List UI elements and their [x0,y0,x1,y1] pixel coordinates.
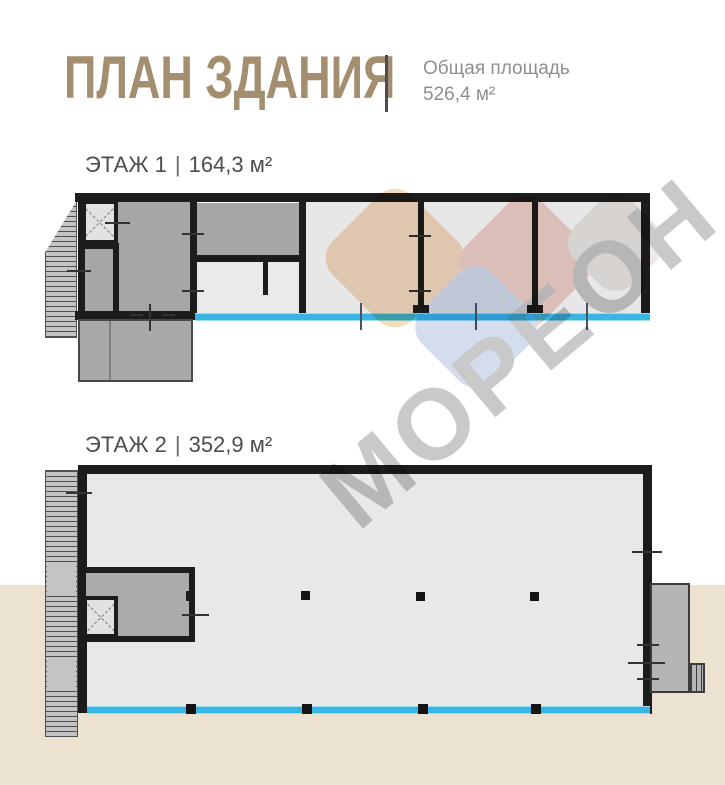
floor1-partition-3-foot [527,305,543,314]
floor1-plan [45,193,650,388]
floor1-door-tick-4 [182,290,204,292]
floor1-upper-dark-room [197,203,299,255]
floor2-label: ЭТАЖ 2|352,9 м² [85,432,272,458]
floor1-top-wall [75,193,650,202]
floor1-room-divider-wall [197,255,306,262]
floor1-door-tick-5 [409,235,431,237]
floor2-door-tick-1 [632,551,662,553]
floor1-door-tick-3 [182,233,204,235]
floor1-door-tick-6 [409,290,431,292]
building-plan-page: ПЛАН ЗДАНИЯ Общая площадь 526,4 м² ЭТАЖ … [0,0,725,785]
page-title: ПЛАН ЗДАНИЯ [64,48,395,108]
floor2-top-wall [78,465,652,474]
floor1-door-dash-2 [163,314,175,316]
floor1-separator: | [167,152,189,177]
floor2-stair-landing-1 [47,564,76,592]
header-divider [385,55,388,112]
total-area-label: Общая площадь [423,56,570,82]
floor1-exterior-staircase [45,200,77,338]
floor1-label: ЭТАЖ 1|164,3 м² [85,152,272,178]
floor1-window-tick-2 [475,303,477,330]
floor1-right-wall [641,193,650,320]
floor2-window-line [87,707,650,713]
floor1-partition-2-foot [413,305,429,314]
floor2-stair-landing-2 [47,661,76,691]
floor2-door-tick-3 [628,662,665,664]
floor2-column-2 [416,592,425,601]
floor2-window-post-2 [302,704,312,714]
floor2-column-1 [301,591,310,600]
floor2-door-tick-5 [66,492,92,494]
floor1-stub-wall [263,262,268,295]
floor1-annex-divider [109,321,111,380]
floor1-inner-wall-b [190,193,197,319]
floor1-door-tick-1 [67,270,91,272]
total-area-value: 526,4 м² [423,82,570,108]
floor1-door-dash-1 [131,314,143,316]
floor1-annex-room [78,319,193,382]
floor2-area: 352,9 м² [189,432,273,457]
floor2-separator: | [167,432,189,457]
floor2-plan [45,463,705,763]
floor2-column-3 [530,592,539,601]
floor1-partition-1 [299,202,306,319]
floor2-exterior-steps [689,663,705,693]
floor1-partition-3 [532,202,538,314]
floor1-door-tick-7 [149,304,151,331]
floor2-inner-room-door-nub [186,591,193,601]
floor1-inner-wall-a [113,243,119,319]
floor2-window-post-3 [418,704,428,714]
floor2-window-post-1 [186,704,196,714]
floor1-door-tick-2 [105,222,130,224]
floor2-inner-room-door-tick [182,614,209,616]
floor1-partition-2 [418,202,424,314]
floor2-door-tick-2 [637,644,659,646]
total-area-block: Общая площадь 526,4 м² [423,56,570,108]
floor2-exterior-annex [650,583,690,693]
floor2-name: ЭТАЖ 2 [85,432,167,457]
floor1-open-rooms-band [306,202,641,314]
floor1-name: ЭТАЖ 1 [85,152,167,177]
floor1-window-tick-1 [360,303,362,330]
floor2-window-post-4 [531,704,541,714]
floor1-lower-light-room [197,262,299,314]
floor2-elevator-shaft [83,596,118,638]
floor1-area: 164,3 м² [189,152,273,177]
floor2-door-tick-4 [637,678,659,680]
floor1-window-line [195,314,650,320]
floor1-window-tick-3 [586,303,588,330]
floor2-exterior-staircase [45,470,78,737]
